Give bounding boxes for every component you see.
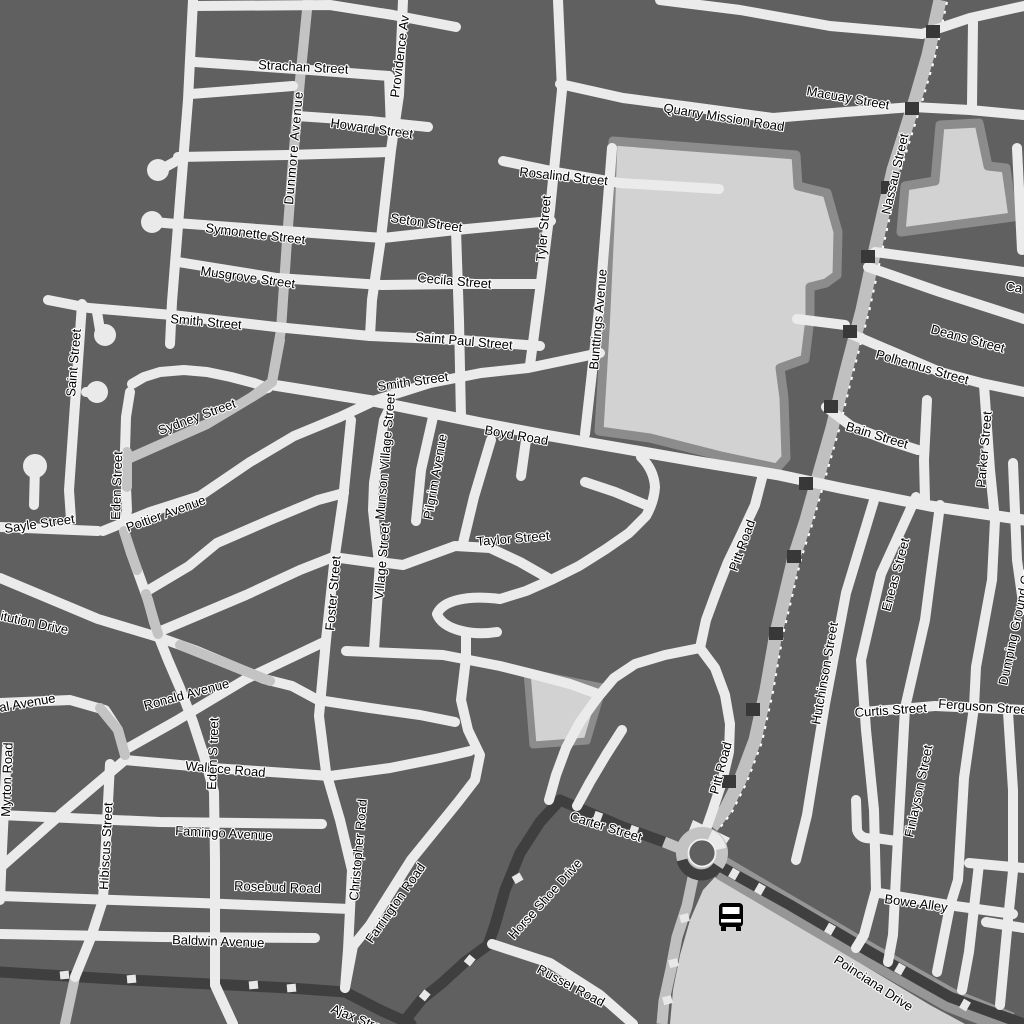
svg-text:Eden S treet: Eden S treet [204,717,222,790]
svg-text:Eden Street: Eden Street [108,451,125,521]
svg-text:Myrton Road: Myrton Road [0,742,16,817]
svg-text:Rosebud Road: Rosebud Road [234,878,321,896]
svg-text:Ca: Ca [1004,278,1024,296]
